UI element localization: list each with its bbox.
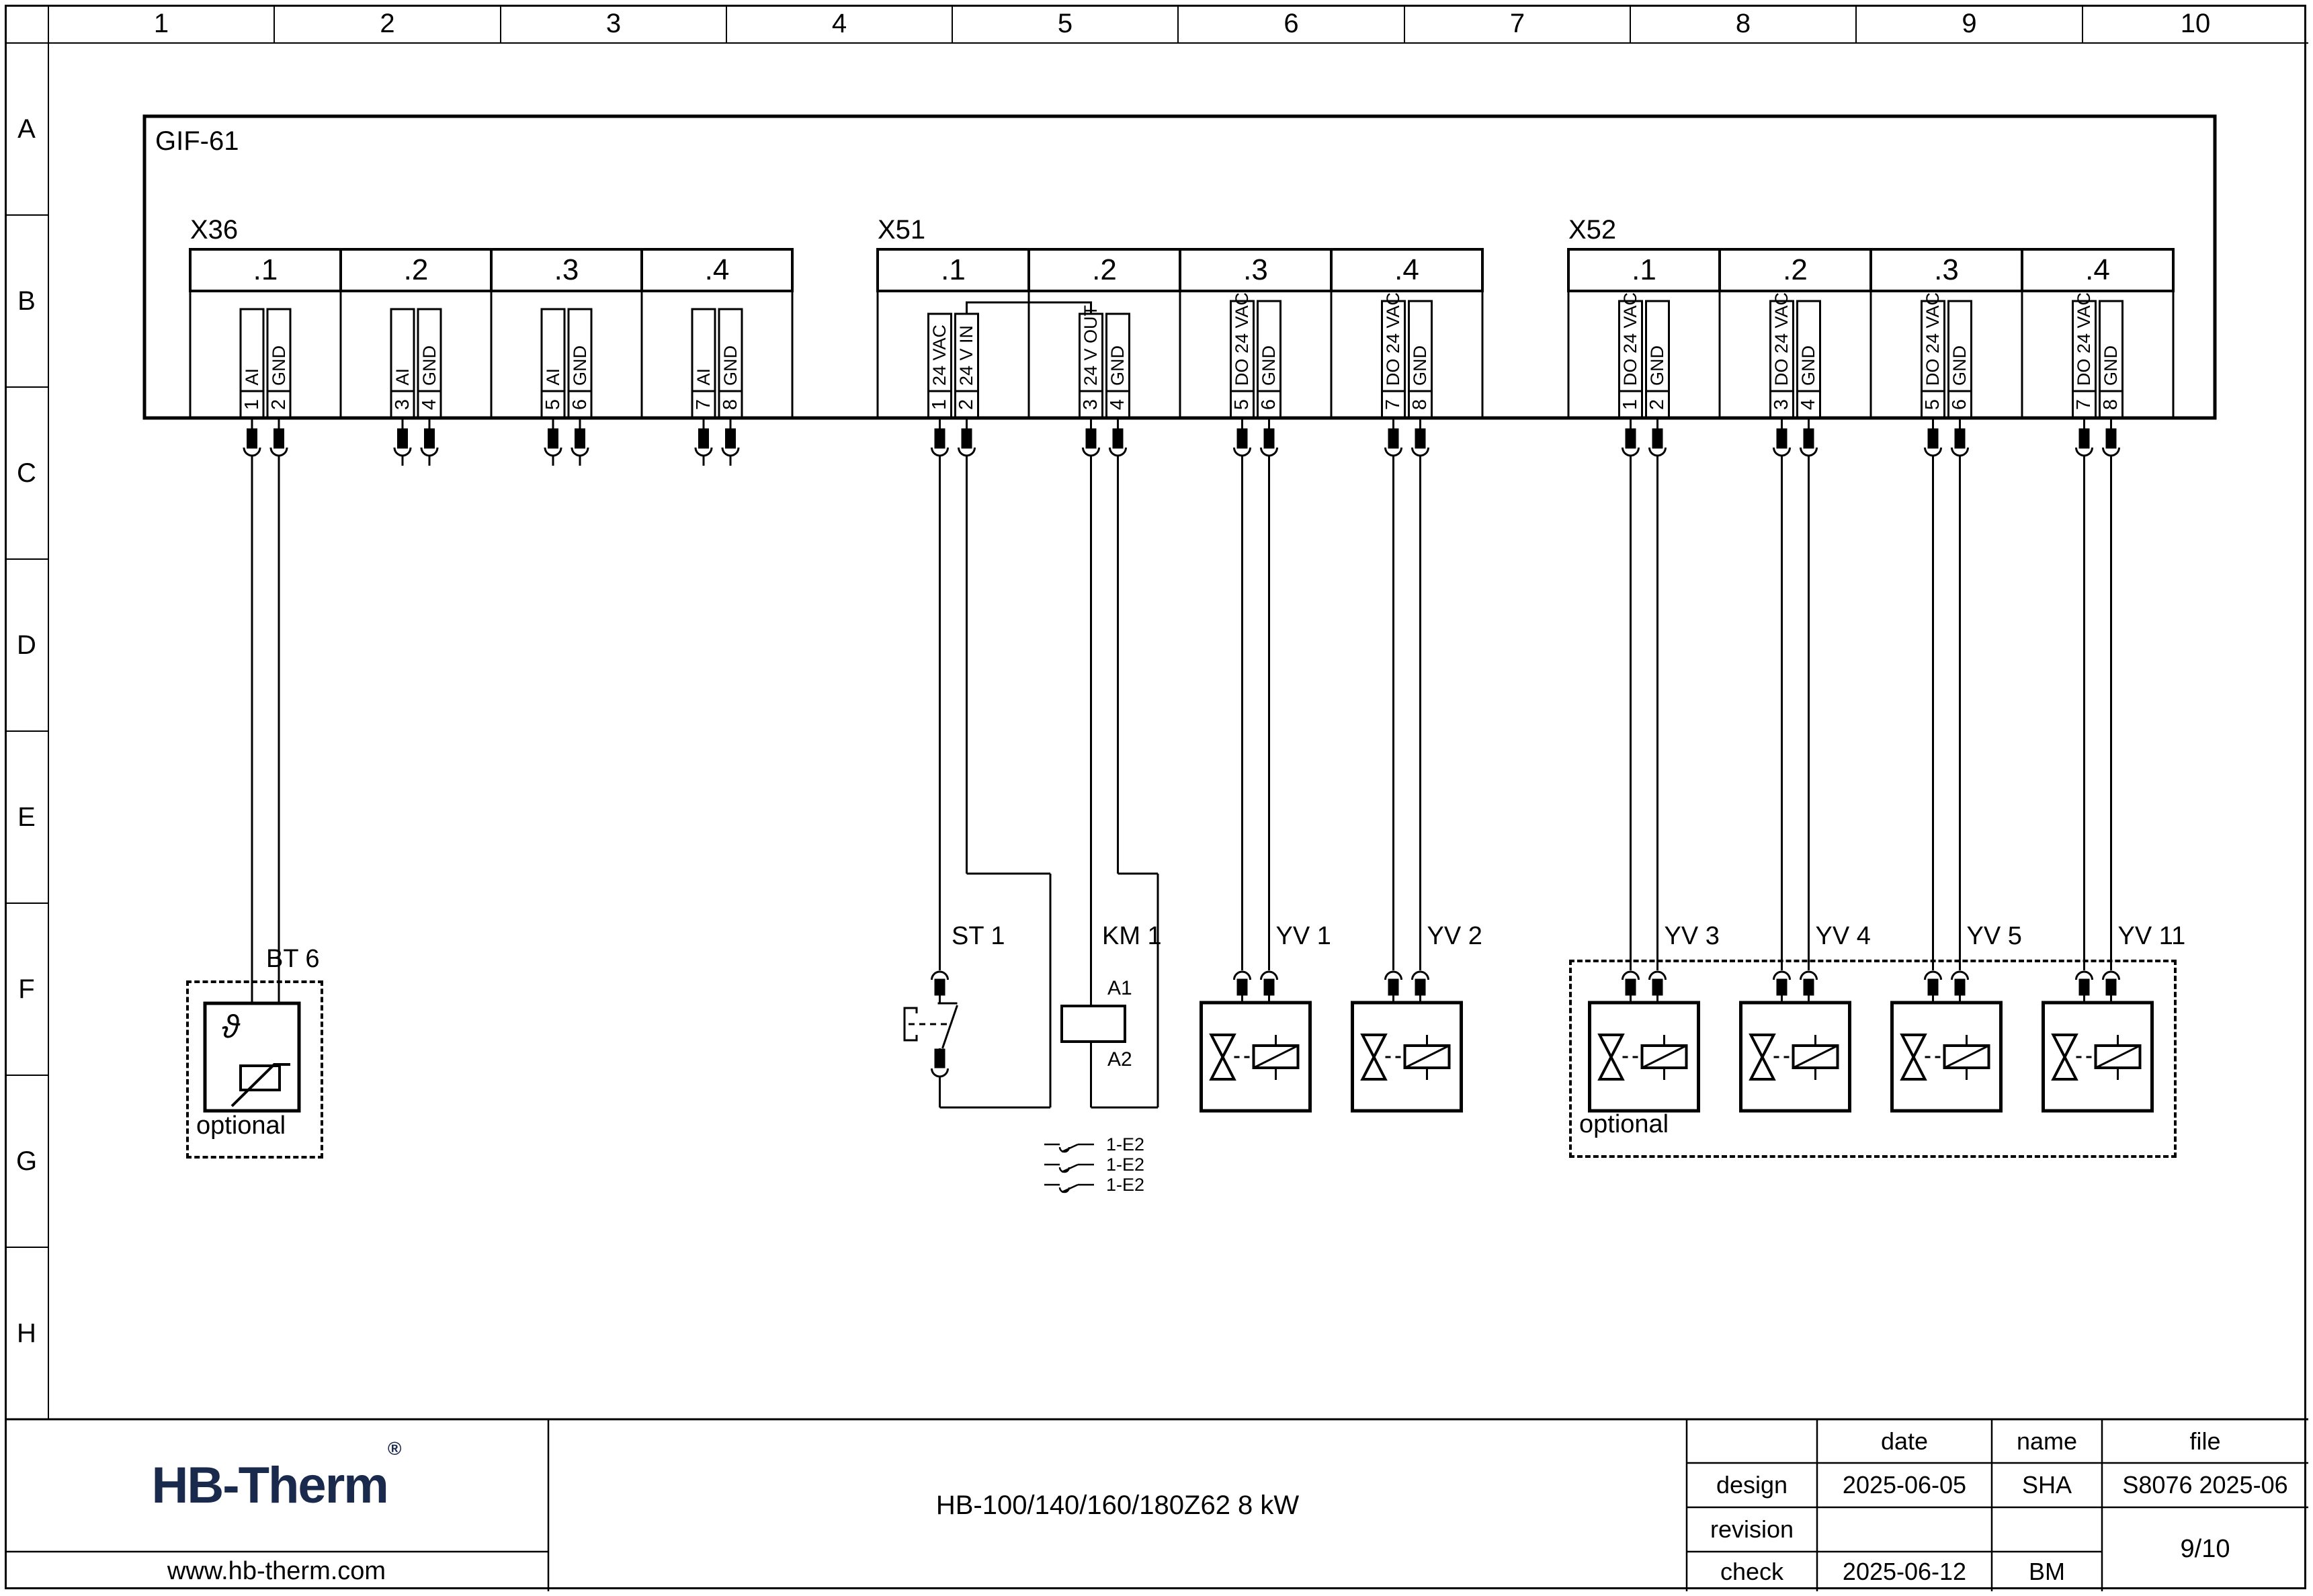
socket-cup (2076, 448, 2093, 456)
socket-cup (421, 448, 437, 456)
socket-cup (1774, 448, 1790, 456)
socket-cup (1801, 448, 1817, 456)
socket-cup (1925, 448, 1941, 456)
terminal-number-text: 1 (1621, 399, 1640, 410)
terminal-signal-text: DO 24 VAC (1233, 292, 1251, 386)
terminal-signal-text: GND (421, 345, 439, 386)
terminal-number-text: 5 (1923, 399, 1943, 410)
terminal-signal: DO 24 VAC (2073, 301, 2096, 391)
design-date: 2025-06-05 (1817, 1463, 1992, 1507)
terminal-signal: GND (1646, 301, 1669, 391)
terminal-signal-text: DO 24 VAC (1384, 292, 1402, 386)
contactor-km1-label: KM 1 (1102, 923, 1162, 949)
grid-row-label: A (5, 43, 48, 215)
terminal-number: 1 (1620, 391, 1642, 418)
company-logo: HB-Therm ® (5, 1419, 548, 1552)
terminal-signal: DO 24 VAC (1382, 301, 1405, 391)
grid-column-label: 6 (1178, 5, 1404, 43)
socket-cup (1413, 972, 1429, 980)
terminal-number-text: 4 (420, 399, 439, 410)
plug-pin (1416, 980, 1425, 995)
grid-row-label: B (5, 215, 48, 387)
socket-cup (1952, 448, 1968, 456)
terminal-number: 7 (1382, 391, 1405, 418)
socket-cup (2103, 448, 2119, 456)
connector-group-label: .4 (2022, 249, 2173, 291)
plug-pin (1389, 980, 1398, 995)
terminal-signal-text: AI (695, 368, 713, 386)
socket-cup (1261, 448, 1277, 456)
grid-column-label: 1 (48, 5, 274, 43)
schematic-line-art (0, 0, 2313, 1596)
company-logo-text: HB-Therm (152, 1456, 388, 1515)
grid-column-label: 2 (274, 5, 501, 43)
plug-pin (1087, 429, 1095, 448)
grid-row-label: F (5, 903, 48, 1075)
terminal-signal-text: AI (394, 368, 412, 386)
revision-row-label: revision (1687, 1507, 1817, 1552)
terminal-number: 5 (1922, 391, 1945, 418)
unit-label: GIF-61 (155, 128, 239, 155)
plug-pin (1265, 429, 1273, 448)
terminal-number: 4 (418, 391, 441, 418)
plug-pin (275, 429, 284, 448)
terminal-signal: AI (391, 309, 414, 391)
socket-cup (244, 448, 260, 456)
socket-cup (394, 448, 411, 456)
terminal-signal: GND (1258, 301, 1281, 391)
terminal-signal: AI (692, 309, 715, 391)
socket-cup (932, 448, 948, 456)
connector-label: X36 (190, 216, 238, 243)
terminal-number-text: 2 (1648, 399, 1667, 410)
plug-pin (398, 429, 407, 448)
socket-cup (1234, 448, 1251, 456)
plug-pin (700, 429, 708, 448)
connector-label: X51 (878, 216, 925, 243)
terminal-signal: GND (719, 309, 742, 391)
terminal-number: 5 (1231, 391, 1254, 418)
terminal-number: 4 (1107, 391, 1130, 418)
terminal-number: 6 (1949, 391, 1972, 418)
drawing-title: HB-100/140/160/180Z62 8 kW (548, 1419, 1687, 1591)
file-number: S8076 2025-06 (2102, 1463, 2308, 1507)
plug-pin (425, 429, 434, 448)
aux-contact-label: 1-E2 (1106, 1156, 1144, 1174)
grid-column-label: 9 (1856, 5, 2083, 43)
terminal-number-text: 3 (393, 399, 413, 410)
valves-optional-boundary (1569, 960, 2177, 1158)
terminal-number-text: 6 (571, 399, 590, 410)
connector-group-label: .1 (190, 249, 341, 291)
terminal-number: 5 (542, 391, 564, 418)
plug-pin (1626, 429, 1635, 448)
connector-group-label: .3 (1871, 249, 2022, 291)
terminal-number-text: 4 (1108, 399, 1128, 410)
socket-cup (932, 1068, 948, 1077)
schematic-page: 12345678910 ABCDEFGH GIF-61 X36.1AI1GND2… (0, 0, 2313, 1596)
plug-pin (1777, 429, 1786, 448)
connector-group-label: .2 (1720, 249, 1871, 291)
terminal-signal-text: AI (544, 368, 562, 386)
terminal-number: 1 (241, 391, 263, 418)
valve-triangle (1363, 1057, 1386, 1079)
valve-label: YV 1 (1276, 923, 1331, 949)
plug-pin (2080, 429, 2089, 448)
valve-label: YV 5 (1967, 923, 2022, 949)
valve-triangle (1363, 1035, 1386, 1057)
connector-group-label: .2 (341, 249, 491, 291)
socket-cup (1110, 448, 1126, 456)
grid-column-label: 10 (2083, 5, 2308, 43)
socket-cup (271, 448, 287, 456)
aux-contact-label: 1-E2 (1106, 1136, 1144, 1154)
socket-cup (932, 972, 948, 980)
terminal-number: 7 (2073, 391, 2096, 418)
terminal-signal-text: DO 24 VAC (1924, 292, 1942, 386)
plug-pin (549, 429, 558, 448)
st1-switch-blade (943, 1005, 958, 1048)
valve-label: YV 11 (2118, 923, 2186, 949)
valve-triangle (1212, 1057, 1234, 1079)
terminal-number-text: 2 (269, 399, 289, 410)
terminal-signal-text: GND (1951, 345, 1969, 386)
terminal-signal: GND (569, 309, 591, 391)
connector-group-label: .3 (1180, 249, 1331, 291)
socket-cup (959, 448, 975, 456)
terminal-number-text: 3 (1772, 399, 1792, 410)
terminal-number-text: 8 (721, 399, 741, 410)
socket-cup (1261, 972, 1277, 980)
terminal-signal-text: DO 24 VAC (1773, 292, 1791, 386)
socket-cup (1083, 448, 1099, 456)
plug-pin (1265, 980, 1273, 995)
terminal-number: 4 (1798, 391, 1820, 418)
plug-pin (576, 429, 585, 448)
socket-cup (722, 448, 739, 456)
terminal-number: 2 (956, 391, 978, 418)
plug-pin (1929, 429, 1937, 448)
terminal-number: 1 (929, 391, 952, 418)
terminal-signal-text: GND (1109, 345, 1127, 386)
terminal-number: 2 (1646, 391, 1669, 418)
plug-pin (726, 429, 735, 448)
plug-pin (1238, 980, 1247, 995)
plug-pin (1804, 429, 1813, 448)
company-website: www.hb-therm.com (5, 1552, 548, 1591)
terminal-number-text: 1 (930, 399, 950, 410)
terminal-signal: AI (542, 309, 564, 391)
valve-triangle (1212, 1035, 1234, 1057)
grid-row-label: E (5, 731, 48, 903)
terminal-number: 6 (569, 391, 591, 418)
design-row-label: design (1687, 1463, 1817, 1507)
connector-label: X52 (1568, 216, 1616, 243)
terminal-signal-text: GND (2102, 345, 2120, 386)
terminal-signal: GND (1409, 301, 1432, 391)
socket-cup (1413, 448, 1429, 456)
terminal-number-text: 6 (1950, 399, 1970, 410)
terminal-signal: GND (1798, 301, 1820, 391)
terminal-number: 8 (1409, 391, 1432, 418)
grid-column-label: 8 (1630, 5, 1856, 43)
terminal-number: 3 (1771, 391, 1794, 418)
bt6-optional-boundary (186, 980, 323, 1159)
terminal-signal-text: 24 V IN (958, 325, 976, 386)
terminal-signal: DO 24 VAC (1231, 301, 1254, 391)
terminal-signal-text: AI (243, 368, 261, 386)
plug-pin (1113, 429, 1122, 448)
plug-pin (1955, 429, 1964, 448)
terminal-number: 6 (1258, 391, 1281, 418)
terminal-signal: AI (241, 309, 263, 391)
check-date: 2025-06-12 (1817, 1552, 1992, 1591)
valve-label: YV 4 (1816, 923, 1871, 949)
terminal-signal: DO 24 VAC (1922, 301, 1945, 391)
terminal-signal: GND (1949, 301, 1972, 391)
check-row-label: check (1687, 1552, 1817, 1591)
terminal-number-text: 7 (694, 399, 714, 410)
terminal-number-text: 2 (957, 399, 976, 410)
terminal-number: 8 (719, 391, 742, 418)
plug-pin (1238, 429, 1247, 448)
terminal-signal: DO 24 VAC (1620, 301, 1642, 391)
socket-cup (1386, 448, 1402, 456)
terminal-number-text: 3 (1081, 399, 1101, 410)
aux-contact-label: 1-E2 (1106, 1176, 1144, 1194)
plug-pin (935, 429, 944, 448)
connector-group-label: .4 (1331, 249, 1482, 291)
terminal-signal-text: GND (722, 345, 740, 386)
terminal-number-text: 6 (1259, 399, 1279, 410)
grid-column-label: 3 (501, 5, 726, 43)
terminal-number-text: 1 (243, 399, 262, 410)
terminal-signal: GND (2100, 301, 2123, 391)
terminal-signal-text: GND (1260, 345, 1278, 386)
terminal-number: 3 (391, 391, 414, 418)
terminal-number-text: 8 (2101, 399, 2121, 410)
terminal-number-text: 4 (1799, 399, 1818, 410)
terminal-signal: 24 V IN (956, 314, 978, 391)
terminal-signal-text: GND (1648, 345, 1667, 386)
grid-column-label: 7 (1404, 5, 1630, 43)
table-header-file: file (2102, 1419, 2308, 1463)
table-header-date: date (1817, 1419, 1992, 1463)
contact-blade (1062, 1165, 1078, 1172)
grid-row-label: H (5, 1247, 48, 1419)
plug-pin (1653, 429, 1662, 448)
terminal-signal-text: 24 V OUT (1082, 305, 1100, 386)
plug-pin (248, 429, 257, 448)
terminal-signal-text: 24 VAC (931, 325, 949, 386)
terminal-number-text: 7 (2074, 399, 2094, 410)
terminal-signal: GND (267, 309, 290, 391)
connector-group-label: .1 (1568, 249, 1720, 291)
connector-group-label: .1 (878, 249, 1029, 291)
plug-pin (2107, 429, 2115, 448)
socket-cup (696, 448, 712, 456)
socket-cup (572, 448, 588, 456)
registered-trademark-symbol: ® (388, 1438, 402, 1460)
sheet-number: 9/10 (2102, 1507, 2308, 1591)
terminal-signal: 24 V OUT (1080, 314, 1103, 391)
socket-cup (1386, 972, 1402, 980)
valve-label: YV 3 (1665, 923, 1720, 949)
contact-blade (1062, 1185, 1078, 1192)
plug-pin (935, 1050, 944, 1067)
socket-cup (1650, 448, 1666, 456)
plug-pin (1389, 429, 1398, 448)
switch-st1-label: ST 1 (952, 923, 1005, 949)
terminal-number-text: 8 (1411, 399, 1430, 410)
terminal-signal-text: GND (571, 345, 589, 386)
terminal-signal: DO 24 VAC (1771, 301, 1794, 391)
plug-pin (962, 429, 971, 448)
plug-pin (935, 980, 944, 995)
km1-coil-a1-label: A1 (1107, 978, 1132, 999)
terminal-signal-text: GND (1800, 345, 1818, 386)
terminal-signal-text: DO 24 VAC (2075, 292, 2093, 386)
socket-cup (545, 448, 561, 456)
terminal-signal-text: GND (1411, 345, 1429, 386)
socket-cup (1234, 972, 1251, 980)
terminal-number: 2 (267, 391, 290, 418)
connector-group-label: .2 (1029, 249, 1180, 291)
socket-cup (1623, 448, 1639, 456)
grid-column-label: 5 (952, 5, 1178, 43)
grid-row-label: G (5, 1075, 48, 1247)
terminal-signal: GND (418, 309, 441, 391)
table-header-name: name (1992, 1419, 2102, 1463)
connector-group-label: .4 (642, 249, 792, 291)
contact-blade (1062, 1144, 1078, 1152)
grid-column-label: 4 (726, 5, 952, 43)
design-name: SHA (1992, 1463, 2102, 1507)
check-name: BM (1992, 1552, 2102, 1591)
terminal-signal-text: GND (270, 345, 288, 386)
km1-coil (1062, 1006, 1125, 1042)
terminal-signal-text: DO 24 VAC (1622, 292, 1640, 386)
terminal-signal: 24 VAC (929, 314, 952, 391)
plug-pin (1416, 429, 1425, 448)
terminal-number: 3 (1080, 391, 1103, 418)
terminal-number-text: 7 (1384, 399, 1403, 410)
grid-row-label: C (5, 387, 48, 559)
connector-group-label: .3 (491, 249, 642, 291)
sensor-bt6-label: BT 6 (266, 946, 320, 972)
terminal-number: 7 (692, 391, 715, 418)
terminal-number: 8 (2100, 391, 2123, 418)
terminal-signal: GND (1107, 314, 1130, 391)
km1-coil-a2-label: A2 (1107, 1050, 1132, 1070)
grid-row-label: D (5, 559, 48, 731)
terminal-number-text: 5 (544, 399, 563, 410)
valve-label: YV 2 (1427, 923, 1482, 949)
terminal-number-text: 5 (1232, 399, 1252, 410)
